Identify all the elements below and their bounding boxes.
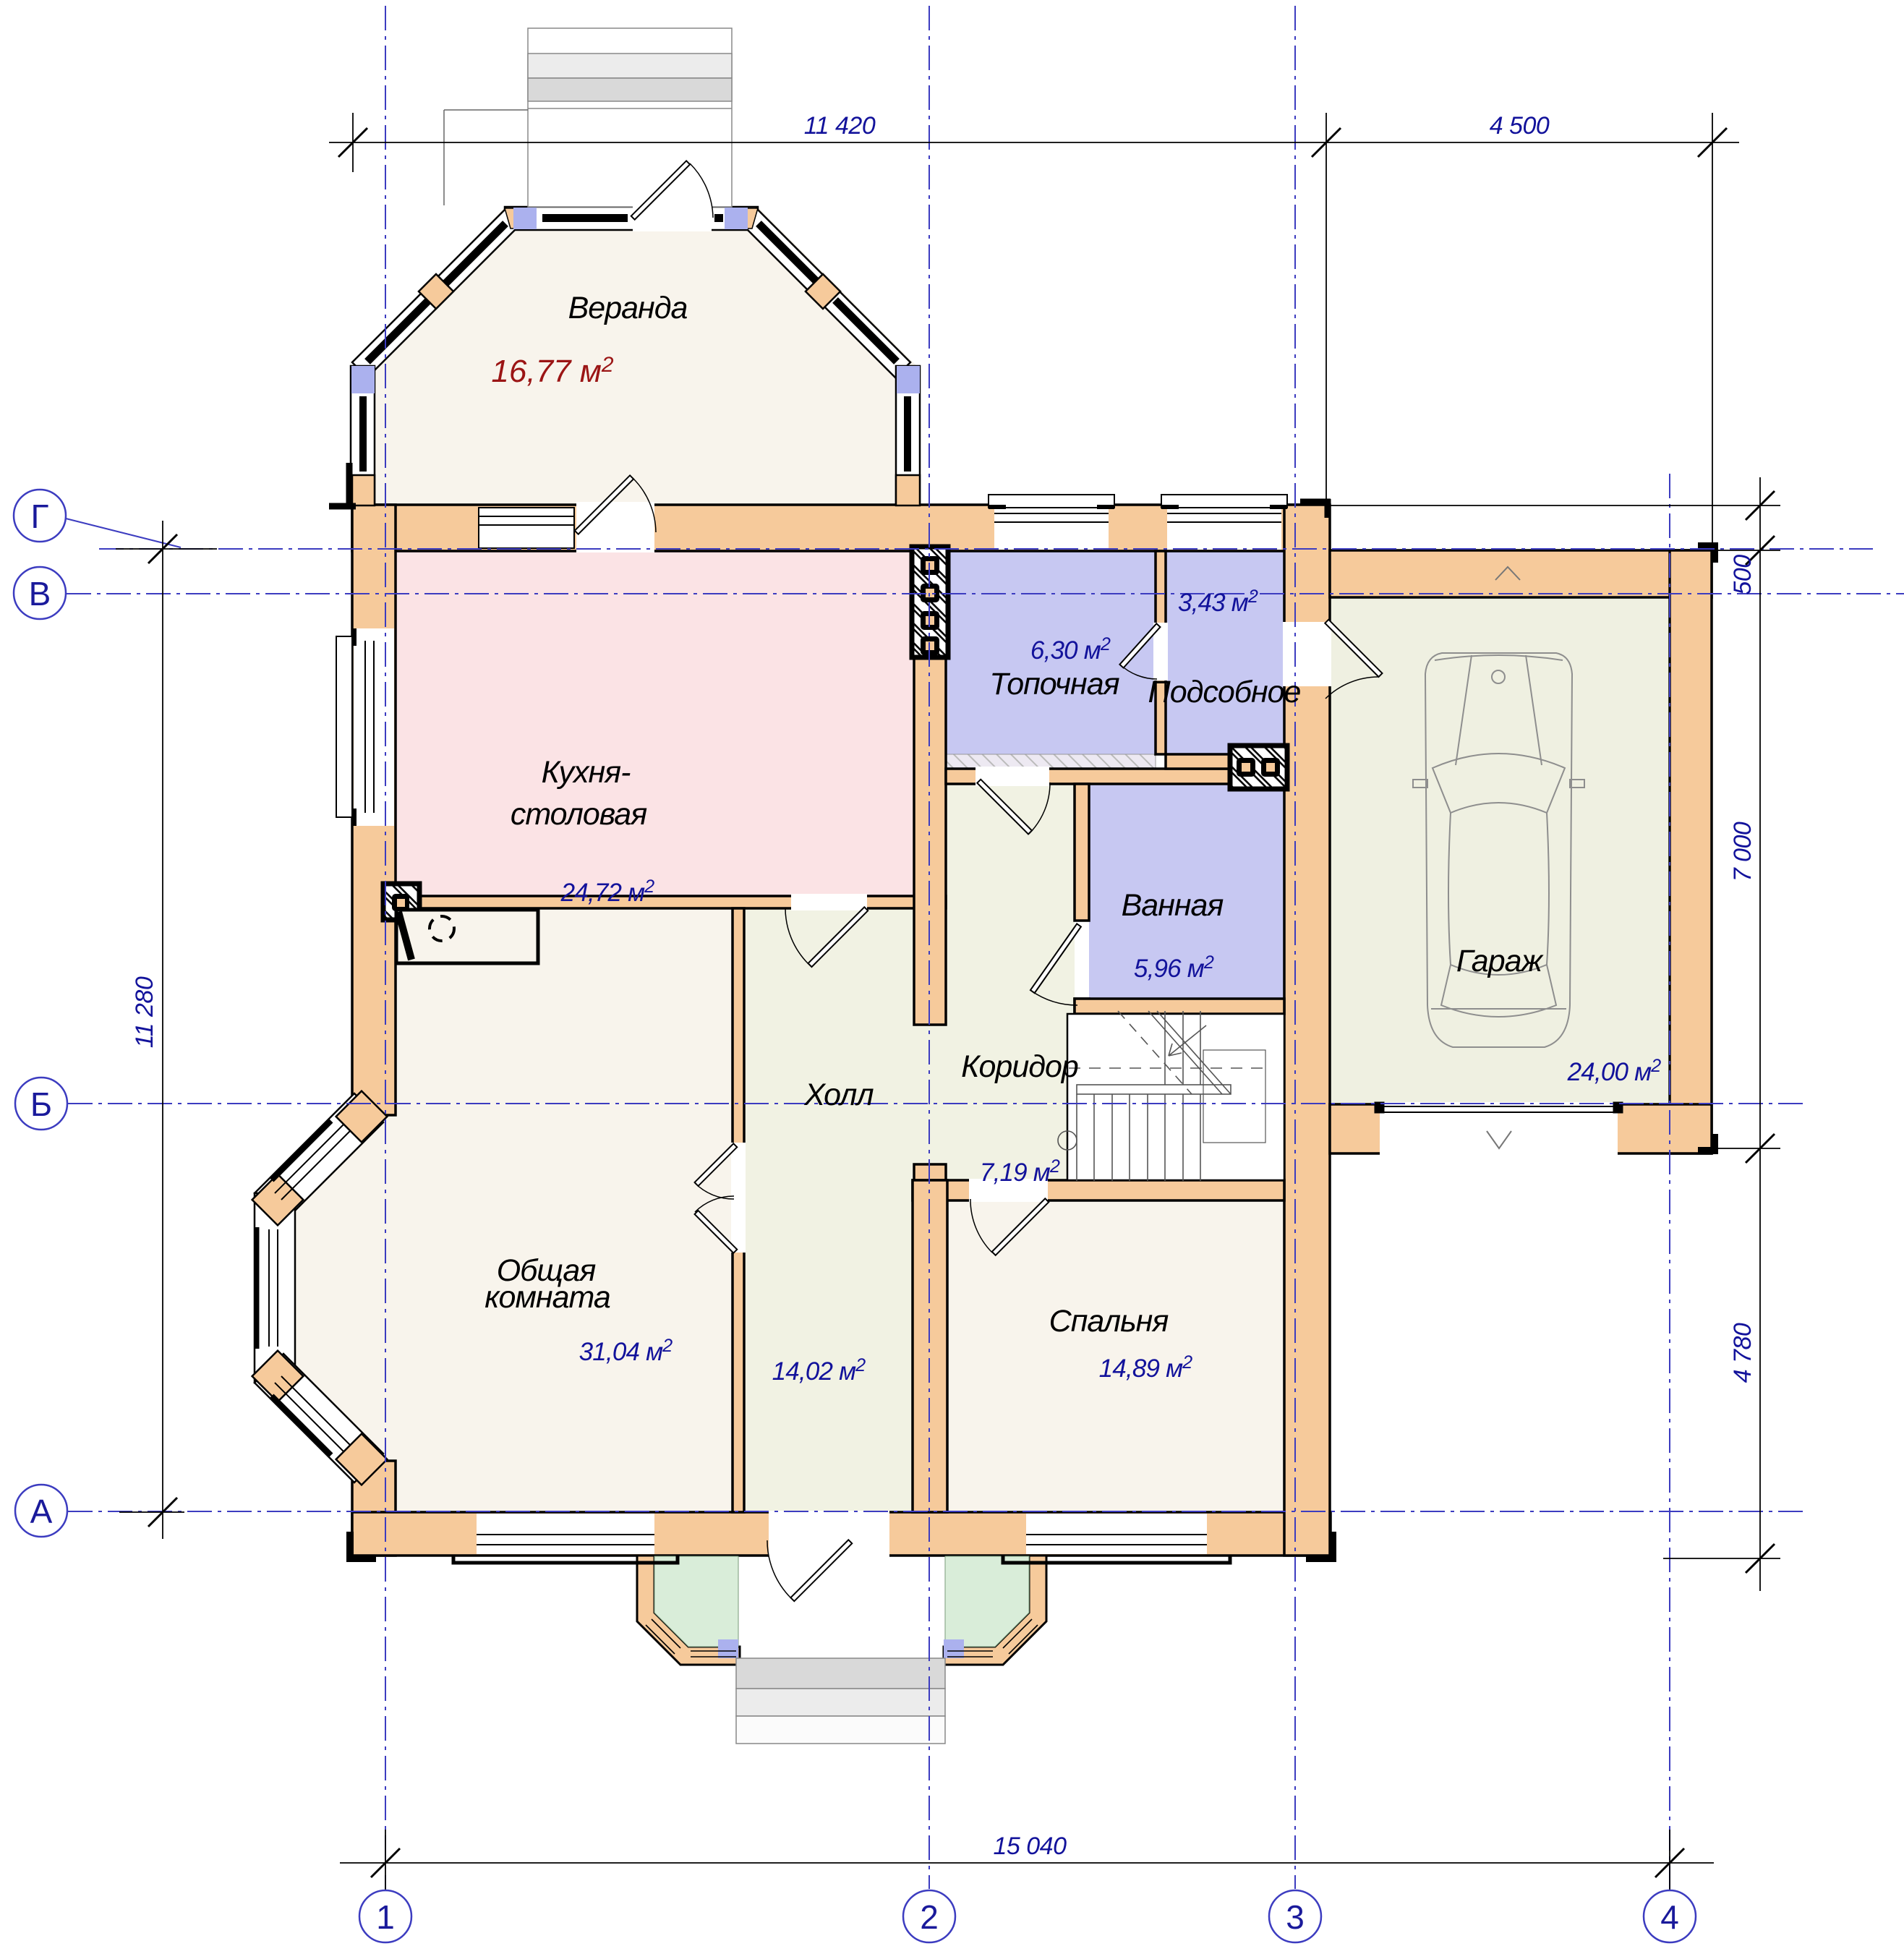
svg-text:11 420: 11 420: [804, 112, 876, 140]
svg-text:Б: Б: [30, 1085, 52, 1123]
svg-text:Коридор: Коридор: [961, 1049, 1078, 1084]
svg-text:4 500: 4 500: [1490, 112, 1550, 140]
svg-text:А: А: [30, 1493, 53, 1530]
svg-text:В: В: [29, 575, 51, 613]
svg-text:6,30 м2: 6,30 м2: [1030, 634, 1111, 665]
svg-text:Веранда: Веранда: [568, 291, 688, 325]
svg-text:комната: комната: [484, 1280, 610, 1315]
svg-text:1: 1: [376, 1898, 395, 1936]
svg-text:Топочная: Топочная: [989, 667, 1119, 701]
svg-text:4: 4: [1660, 1898, 1679, 1936]
svg-text:24,72 м2: 24,72 м2: [560, 876, 655, 907]
svg-text:Кухня-: Кухня-: [542, 755, 631, 790]
svg-text:11 280: 11 280: [131, 976, 158, 1048]
svg-text:15 040: 15 040: [994, 1833, 1067, 1860]
svg-text:Холл: Холл: [803, 1078, 874, 1112]
svg-text:31,04 м2: 31,04 м2: [579, 1336, 673, 1366]
svg-text:Ванная: Ванная: [1122, 888, 1224, 923]
svg-text:4 780: 4 780: [1729, 1323, 1756, 1383]
svg-text:Гараж: Гараж: [1456, 944, 1545, 978]
svg-text:500: 500: [1729, 555, 1756, 595]
svg-text:столовая: столовая: [511, 797, 647, 832]
svg-text:24,00 м2: 24,00 м2: [1567, 1056, 1662, 1086]
svg-text:2: 2: [920, 1898, 939, 1936]
svg-text:Подсобное: Подсобное: [1148, 675, 1301, 709]
svg-text:Г: Г: [31, 498, 49, 535]
svg-text:3,43 м2: 3,43 м2: [1178, 586, 1258, 617]
svg-text:5,96 м2: 5,96 м2: [1134, 952, 1214, 983]
svg-text:14,02 м2: 14,02 м2: [772, 1355, 866, 1386]
svg-text:14,89 м2: 14,89 м2: [1099, 1352, 1193, 1383]
svg-text:3: 3: [1286, 1898, 1305, 1936]
svg-text:16,77 м2: 16,77 м2: [491, 353, 614, 389]
svg-text:7,19 м2: 7,19 м2: [980, 1156, 1060, 1187]
svg-text:7 000: 7 000: [1729, 822, 1756, 882]
svg-text:Спальня: Спальня: [1049, 1304, 1169, 1339]
